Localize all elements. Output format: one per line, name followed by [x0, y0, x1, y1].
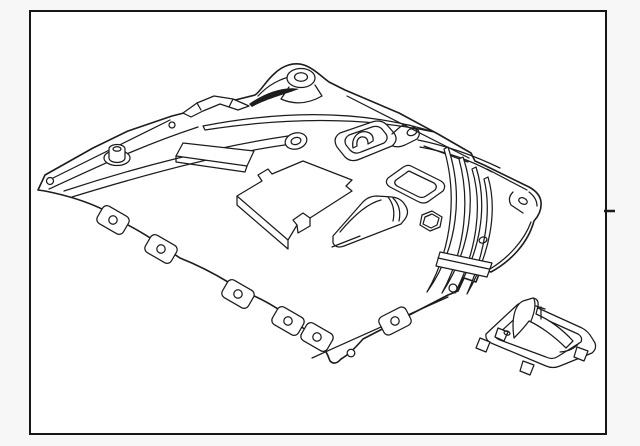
page: { "page": { "background": "#f7f7f7" }, "… — [0, 0, 640, 446]
parts-diagram-illustration — [0, 0, 640, 446]
